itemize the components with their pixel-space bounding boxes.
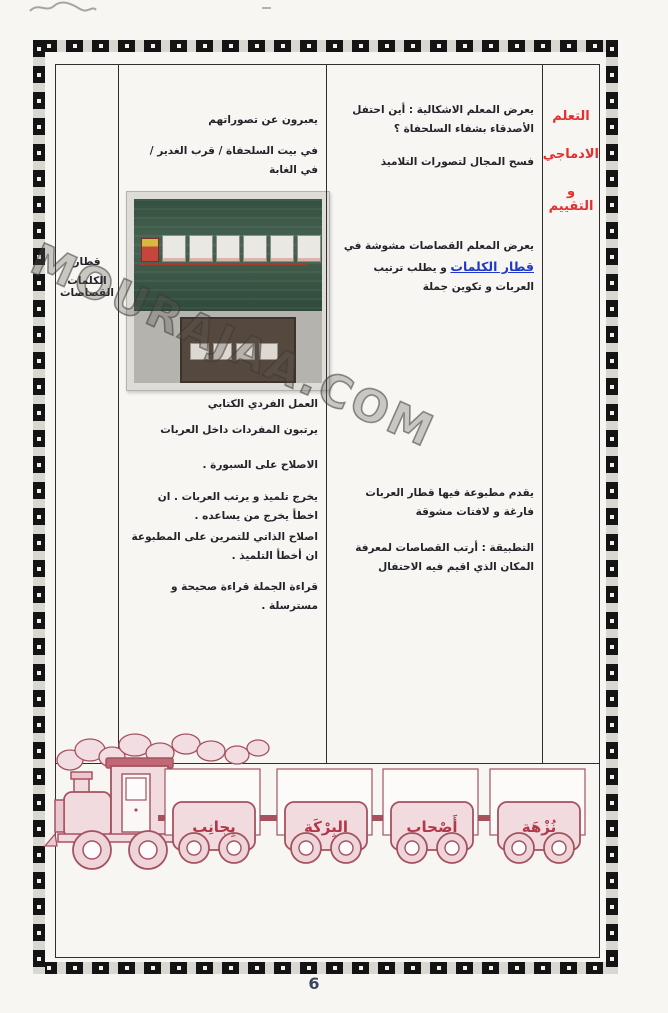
teacher-paragraph: التطبيقة : أرتب القصاصات لمعرفة المكان ا…	[337, 539, 534, 577]
teacher-paragraph: يعرض المعلم القصاصات مشوشة في قطار الكلم…	[337, 237, 534, 297]
pencil-squiggle	[28, 0, 98, 16]
teacher-paragraph-text: يعرض المعلم القصاصات مشوشة في	[344, 240, 534, 252]
toy-locomotive-card	[141, 238, 159, 262]
word-card	[216, 235, 240, 262]
word-train-drawing: بِجانِب البِرْكَة أَصْحاب	[40, 730, 600, 885]
pupil-paragraph: يخرج تلميذ و يرتب العربات . ان اخطأ يخرج…	[129, 488, 318, 526]
train-wagon: نُزْهَة	[490, 769, 585, 863]
word-card	[162, 235, 186, 262]
assessment-title-line: و التقييم	[543, 184, 599, 214]
wagon-word: بِجانِب	[192, 818, 236, 838]
small-dark-board	[180, 317, 296, 383]
border-strip-right	[606, 40, 618, 974]
word-card	[189, 235, 213, 262]
word-card	[270, 235, 294, 262]
word-card	[236, 343, 255, 360]
wagon-word: البِرْكَة	[304, 818, 348, 838]
train-wagon: بِجانِب	[165, 769, 260, 863]
lesson-table-row: قطار الكلمات القصاصات يعبرون عن تصوراتهم…	[56, 65, 599, 764]
word-card	[190, 343, 209, 360]
assessment-title-line: الادماجي	[543, 147, 599, 162]
assessment-title-line: التعلم	[543, 109, 599, 124]
track-line	[139, 263, 307, 265]
materials-line: القصاصات	[58, 284, 116, 303]
border-strip-top	[40, 40, 612, 52]
pupil-paragraph: يرتبون المفردات داخل العربات	[129, 421, 318, 440]
chalkboard-photo	[126, 191, 330, 391]
train-wagon: البِرْكَة	[277, 769, 372, 863]
pupil-paragraph: اصلاح الذاتي للتمرين على المطبوعة ان أخط…	[129, 528, 318, 566]
pupil-paragraph: يعبرون عن تصوراتهم	[129, 111, 318, 130]
scanned-lesson-sheet: قطار الكلمات القصاصات يعبرون عن تصوراتهم…	[0, 0, 668, 1013]
pupil-paragraph: الاصلاح على السبورة .	[129, 456, 318, 475]
scan-speck	[262, 7, 271, 9]
word-card	[243, 235, 267, 262]
page-number: 6	[0, 974, 628, 993]
teacher-paragraph: يقدم مطبوعة فيها قطار العربات فارغة و لا…	[337, 484, 534, 522]
assessment-column: التعلم الادماجي و التقييم	[542, 65, 599, 763]
word-card	[213, 343, 232, 360]
locomotive	[45, 758, 180, 869]
chalkboard-green-board	[134, 199, 322, 311]
pupil-activities-column: يعبرون عن تصوراتهم في بيت السلحفاة / قرب…	[118, 65, 327, 763]
wagon-word: أَصْحاب	[406, 814, 457, 836]
materials-column: قطار الكلمات القصاصات	[56, 65, 118, 763]
teacher-paragraph: فسح المجال لتصورات التلاميذ	[337, 153, 534, 172]
teacher-paragraph: يعرض المعلم الاشكالية : أين احتفل الأصدق…	[337, 101, 534, 139]
word-card	[259, 343, 278, 360]
wagon-word: نُزْهَة	[522, 818, 556, 836]
word-train-cards	[141, 235, 321, 262]
word-card	[297, 235, 321, 262]
pupil-paragraph: قراءة الجملة قراءة صحيحة و مسترسلة .	[129, 578, 318, 616]
pupil-paragraph: العمل الفردي الكتابي	[129, 395, 318, 414]
pupil-paragraph: في بيت السلحفاة / قرب الغدير / في الغابة	[129, 142, 318, 180]
word-train-highlight: قطار الكلمات	[450, 259, 534, 274]
border-strip-bottom	[40, 962, 612, 974]
teacher-activities-column: يعرض المعلم الاشكالية : أين احتفل الأصدق…	[326, 65, 543, 763]
small-card-row	[190, 343, 278, 360]
train-wagon: أَصْحاب	[383, 769, 478, 863]
